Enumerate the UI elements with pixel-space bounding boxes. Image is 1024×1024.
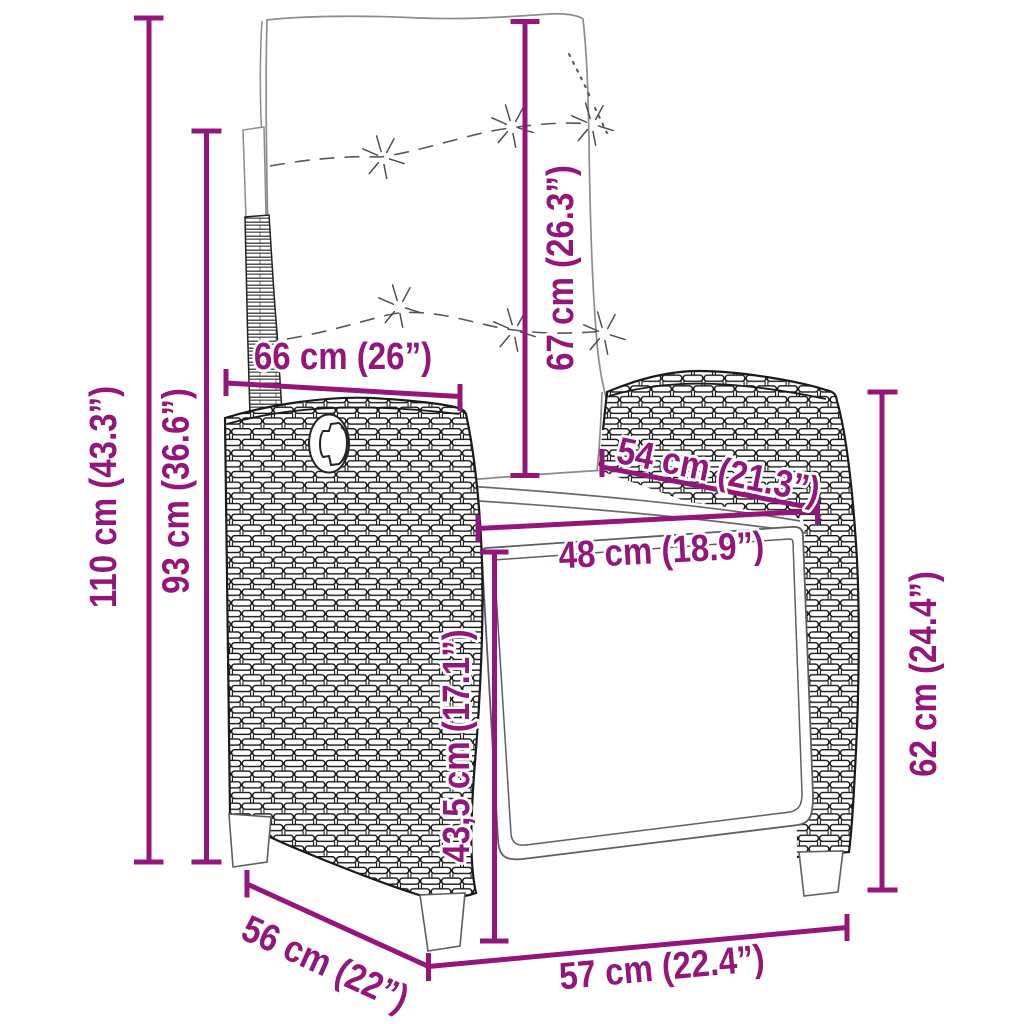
svg-text:110 cm (43.3”): 110 cm (43.3”) bbox=[82, 386, 125, 608]
svg-text:62 cm (24.4”): 62 cm (24.4”) bbox=[902, 571, 945, 777]
svg-text:66 cm (26”): 66 cm (26”) bbox=[254, 335, 432, 378]
svg-text:93 cm (36.6”): 93 cm (36.6”) bbox=[154, 388, 197, 594]
svg-text:67 cm (26.3”): 67 cm (26.3”) bbox=[539, 165, 582, 371]
svg-text:43,5 cm (17.1”): 43,5 cm (17.1”) bbox=[435, 629, 478, 862]
